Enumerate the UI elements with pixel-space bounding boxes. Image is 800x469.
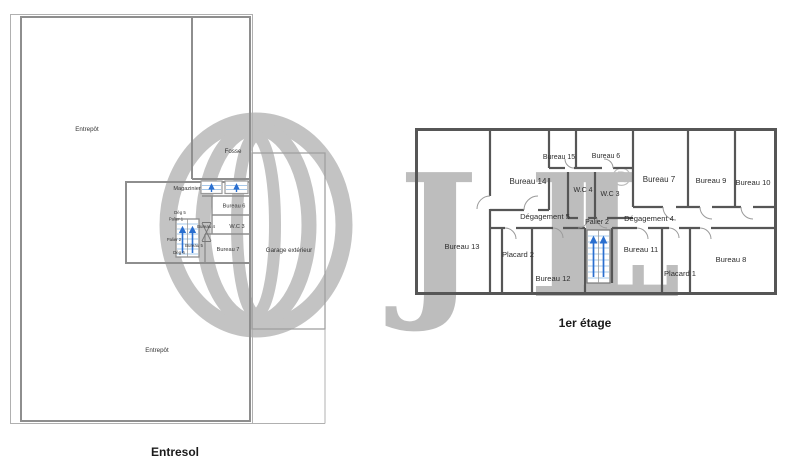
room-label-magazinier: Magazinier [173,186,200,192]
room-label-bureau-9: Bureau 9 [696,176,727,185]
room-label-entrepot-bas: Entrepôt [145,347,169,354]
room-label-bureau-13: Bureau 13 [444,242,479,251]
room-label-palier-2: Palier 2 [585,219,609,226]
premier-etage-title: 1er étage [559,316,612,330]
watermark-letters: J L L ® [385,137,682,337]
room-label-degagement-5: Dégagement 5 [520,212,570,221]
room-label-wc-3: W.C 3 [229,224,244,230]
room-label-bureau-6: Bureau 6 [592,153,621,160]
room-label-wc-4: W.C 4 [573,187,592,194]
room-label-bureau-14: Bureau 14 [510,177,547,186]
room-label-deg-6: Dég 6 [173,250,185,255]
room-label-bureau-6: Bureau 6 [223,204,246,210]
watermark-letter-j: J [385,137,478,337]
staircase-up-symbol [587,230,610,283]
room-label-bureau-15: Bureau 15 [543,154,575,161]
room-label-palier-2: Palier 2 [167,237,182,242]
room-label-placard-1: Placard 1 [664,269,696,278]
room-label-deg-5: Dég 5 [174,210,186,215]
room-label-bureau-5: Bureau 5 [185,243,203,248]
room-label-bureau-7: Bureau 7 [643,175,676,184]
room-label-bureau-7: Bureau 7 [217,247,240,253]
floor-plan-canvas: J L L ® [0,0,800,469]
window-hatch-symbol [225,181,248,194]
room-label-bureau-12: Bureau 12 [535,274,570,283]
room-label-bureau-4: Bureau 4 [197,224,215,229]
room-label-palier-1: Palier 1 [169,217,184,222]
room-label-bureau-10: Bureau 10 [735,178,770,187]
window-hatch-symbol [201,181,222,194]
room-label-bureau-8: Bureau 8 [716,255,747,264]
room-label-bureau-11: Bureau 11 [624,245,658,254]
room-label-placard-2: Placard 2 [502,250,534,259]
room-label-garage-exterieur: Garage extérieur [266,247,312,254]
floor-plan-document: J L L ® [0,0,800,469]
room-label-degagement-4: Dégagement 4 [624,214,674,223]
room-label-entrepot-haut: Entrepôt [75,126,99,133]
registered-trademark-icon: ® [612,162,631,192]
room-label-fosse: Fosse [225,148,242,155]
room-label-wc-3: W.C 3 [600,191,619,198]
entresol-title: Entresol [151,445,199,459]
